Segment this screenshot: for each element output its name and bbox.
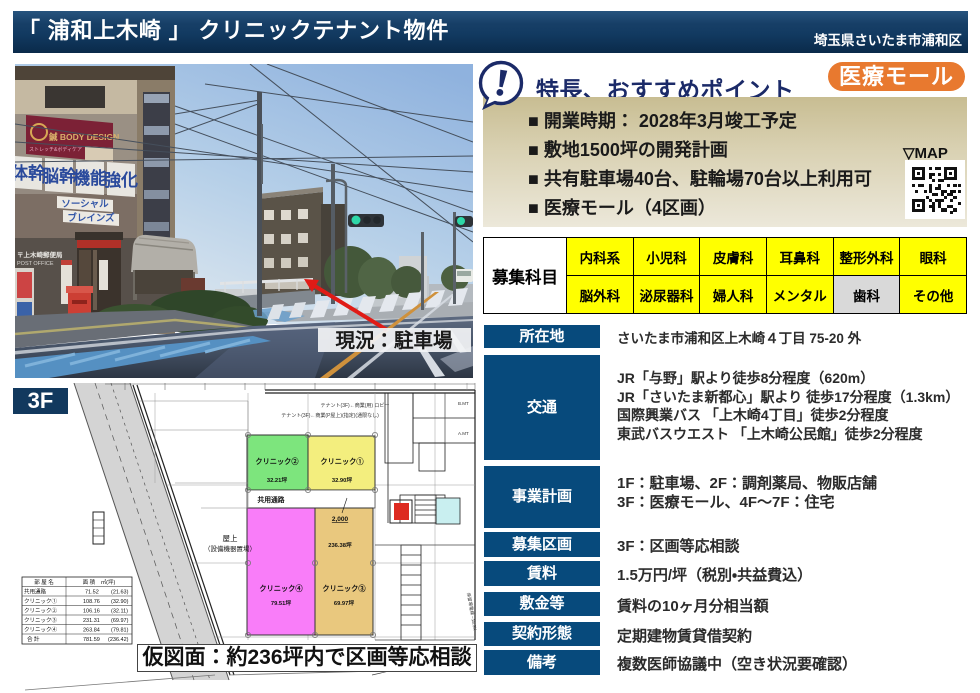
svg-text:ソーシャル: ソーシャル <box>61 199 109 210</box>
svg-text:231.31: 231.31 <box>83 618 100 624</box>
svg-text:クリニック①: クリニック① <box>24 597 58 605</box>
svg-text:合 計: 合 計 <box>27 635 40 643</box>
svg-text:79.51坪: 79.51坪 <box>271 599 292 607</box>
svg-text:強化: 強化 <box>104 170 138 190</box>
svg-text:POST OFFICE: POST OFFICE <box>17 261 54 267</box>
svg-text:脳幹: 脳幹 <box>42 166 77 186</box>
svg-text:機能: 機能 <box>73 168 107 188</box>
svg-text:A.MT: A.MT <box>458 431 469 436</box>
svg-text:現況：駐車場: 現況：駐車場 <box>335 329 453 352</box>
svg-text:32.21坪: 32.21坪 <box>267 476 288 484</box>
svg-text:108.76: 108.76 <box>83 599 100 605</box>
svg-text:部 屋 名: 部 屋 名 <box>34 578 54 586</box>
svg-text:屋上: 屋上 <box>223 534 238 543</box>
svg-text:B.MT: B.MT <box>458 401 469 406</box>
svg-text:71.52: 71.52 <box>85 590 99 596</box>
svg-text:クリニック③: クリニック③ <box>322 584 366 593</box>
svg-text:ブレインズ: ブレインズ <box>67 212 115 224</box>
svg-text:クリニック④: クリニック④ <box>24 626 58 634</box>
svg-text:(32.90): (32.90) <box>111 599 129 605</box>
svg-text:(79.81): (79.81) <box>111 628 129 634</box>
svg-text:236.38坪: 236.38坪 <box>328 541 352 549</box>
svg-text:(21.63): (21.63) <box>111 590 129 596</box>
svg-text:面 積 ㎡(坪): 面 積 ㎡(坪) <box>83 578 116 586</box>
svg-text:ストレッチ&ボディケア: ストレッチ&ボディケア <box>29 146 82 153</box>
svg-text:クリニック④: クリニック④ <box>259 584 303 593</box>
svg-text:2,000: 2,000 <box>332 516 349 523</box>
svg-text:(32.11): (32.11) <box>111 609 128 615</box>
svg-text:テナント(3F)←商業(用) ロビー: テナント(3F)←商業(用) ロビー <box>321 402 390 409</box>
svg-text:263.84: 263.84 <box>83 628 100 634</box>
svg-text:106.16: 106.16 <box>83 609 100 615</box>
svg-text:32.90坪: 32.90坪 <box>332 476 353 484</box>
svg-text:(69.97): (69.97) <box>111 618 129 624</box>
svg-text:781.59: 781.59 <box>83 637 100 643</box>
svg-text:（設備機器置場）: （設備機器置場） <box>204 544 256 553</box>
svg-text:共用通路: 共用通路 <box>257 495 284 504</box>
svg-text:クリニック②: クリニック② <box>24 607 58 615</box>
svg-text:クリニック③: クリニック③ <box>24 616 58 624</box>
svg-text:クリニック②: クリニック② <box>255 457 299 466</box>
svg-text:テナント(3F)←商業(P屋上)(指定)(通限なし): テナント(3F)←商業(P屋上)(指定)(通限なし) <box>281 412 379 419</box>
svg-text:〒上木崎郵便局: 〒上木崎郵便局 <box>17 250 63 259</box>
svg-text:クリニック①: クリニック① <box>320 457 364 466</box>
svg-text:鍼 BODY DESIGN: 鍼 BODY DESIGN <box>48 132 119 142</box>
svg-text:共用通路: 共用通路 <box>24 588 47 596</box>
svg-text:69.97坪: 69.97坪 <box>334 599 355 607</box>
svg-text:(236.42): (236.42) <box>108 637 129 643</box>
